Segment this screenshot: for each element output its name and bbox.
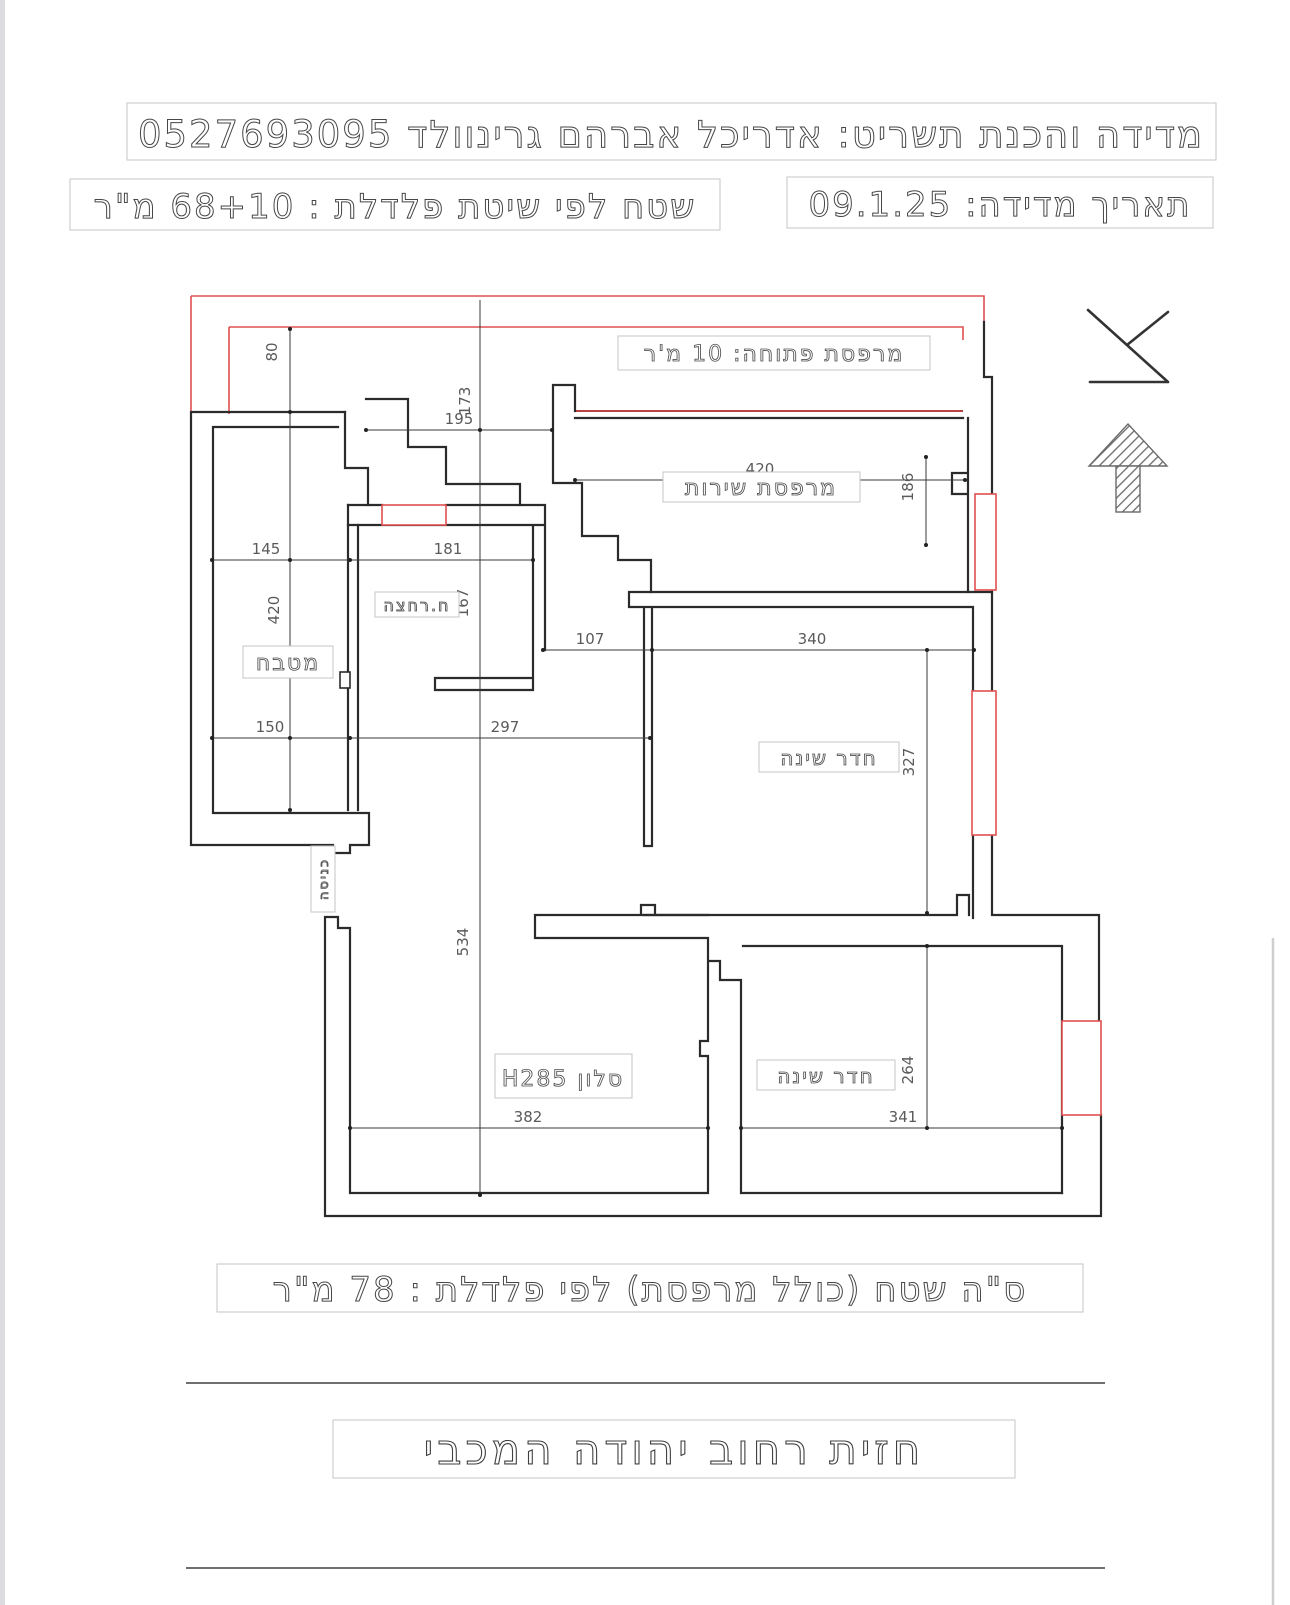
dim-195: 195 (445, 410, 474, 428)
header-area: שטח לפי שיטת פלדלת : 68+10 מ"ר (94, 187, 697, 227)
dim-181: 181 (434, 540, 463, 558)
exterior-envelope-red (191, 296, 984, 505)
dim-80: 80 (263, 342, 281, 361)
header-title: מדידה והכנת תשריט: אדריכל אברהם גרינוולד… (138, 113, 1204, 156)
kitchen-label: מטבח (256, 651, 320, 676)
walls-upper-steps (345, 385, 651, 592)
kitchen-door-jamb (340, 672, 350, 688)
bedroom-bottom-label: חדר שינה (777, 1064, 874, 1088)
dim-327: 327 (900, 748, 918, 777)
walls-living-room (325, 905, 1101, 1216)
header-date: תאריך מדידה: 09.1.25 (808, 185, 1191, 225)
dim-420-left: 420 (265, 596, 283, 625)
dim-382: 382 (514, 1108, 543, 1126)
entrance-label: כניסה (317, 858, 332, 900)
dim-534: 534 (454, 928, 472, 957)
bathroom-label: ח.רחצה (384, 596, 451, 615)
street-label: חזית רחוב יהודה המכבי (424, 1425, 924, 1474)
page-left-edge (0, 0, 5, 1605)
dim-264: 264 (899, 1056, 917, 1085)
window-bedroom-top (972, 691, 996, 835)
north-symbol (1088, 310, 1168, 512)
dim-297: 297 (491, 718, 520, 736)
north-arrow-icon (1089, 424, 1167, 512)
window-bedroom-bottom (1062, 1021, 1101, 1115)
dim-150: 150 (256, 718, 285, 736)
walls-bedroom-top (629, 592, 1099, 1193)
dimension-lines (212, 300, 1062, 1195)
living-room-label: סלון H285 (502, 1067, 624, 1092)
dim-107: 107 (576, 630, 605, 648)
window-service-balcony (975, 494, 996, 590)
dim-341: 341 (889, 1108, 918, 1126)
dim-186: 186 (899, 473, 917, 502)
walls-kitchen (191, 412, 369, 853)
dimension-ticks (210, 327, 1064, 1197)
north-letter-icon (1088, 310, 1168, 382)
dim-340: 340 (798, 630, 827, 648)
service-balcony-label: מרפסת שירות (685, 476, 837, 501)
floor-plan-page: מדידה והכנת תשריט: אדריכל אברהם גרינוולד… (0, 0, 1290, 1605)
window-kitchen (382, 505, 446, 525)
open-balcony-label: מרפסת פתוחה: 10 מ'ר (644, 342, 905, 367)
dimension-labels: 80 173 195 420 186 145 181 420 167 107 3… (252, 342, 918, 1126)
dim-145: 145 (252, 540, 281, 558)
floor-plan-drawing: מדידה והכנת תשריט: אדריכל אברהם גרינוולד… (0, 0, 1290, 1605)
bedroom-top-label: חדר שינה (780, 746, 877, 770)
total-area-text: ס"ה שטח (כולל מרפסת) לפי פלדלת : 78 מ"ר (273, 1270, 1028, 1310)
